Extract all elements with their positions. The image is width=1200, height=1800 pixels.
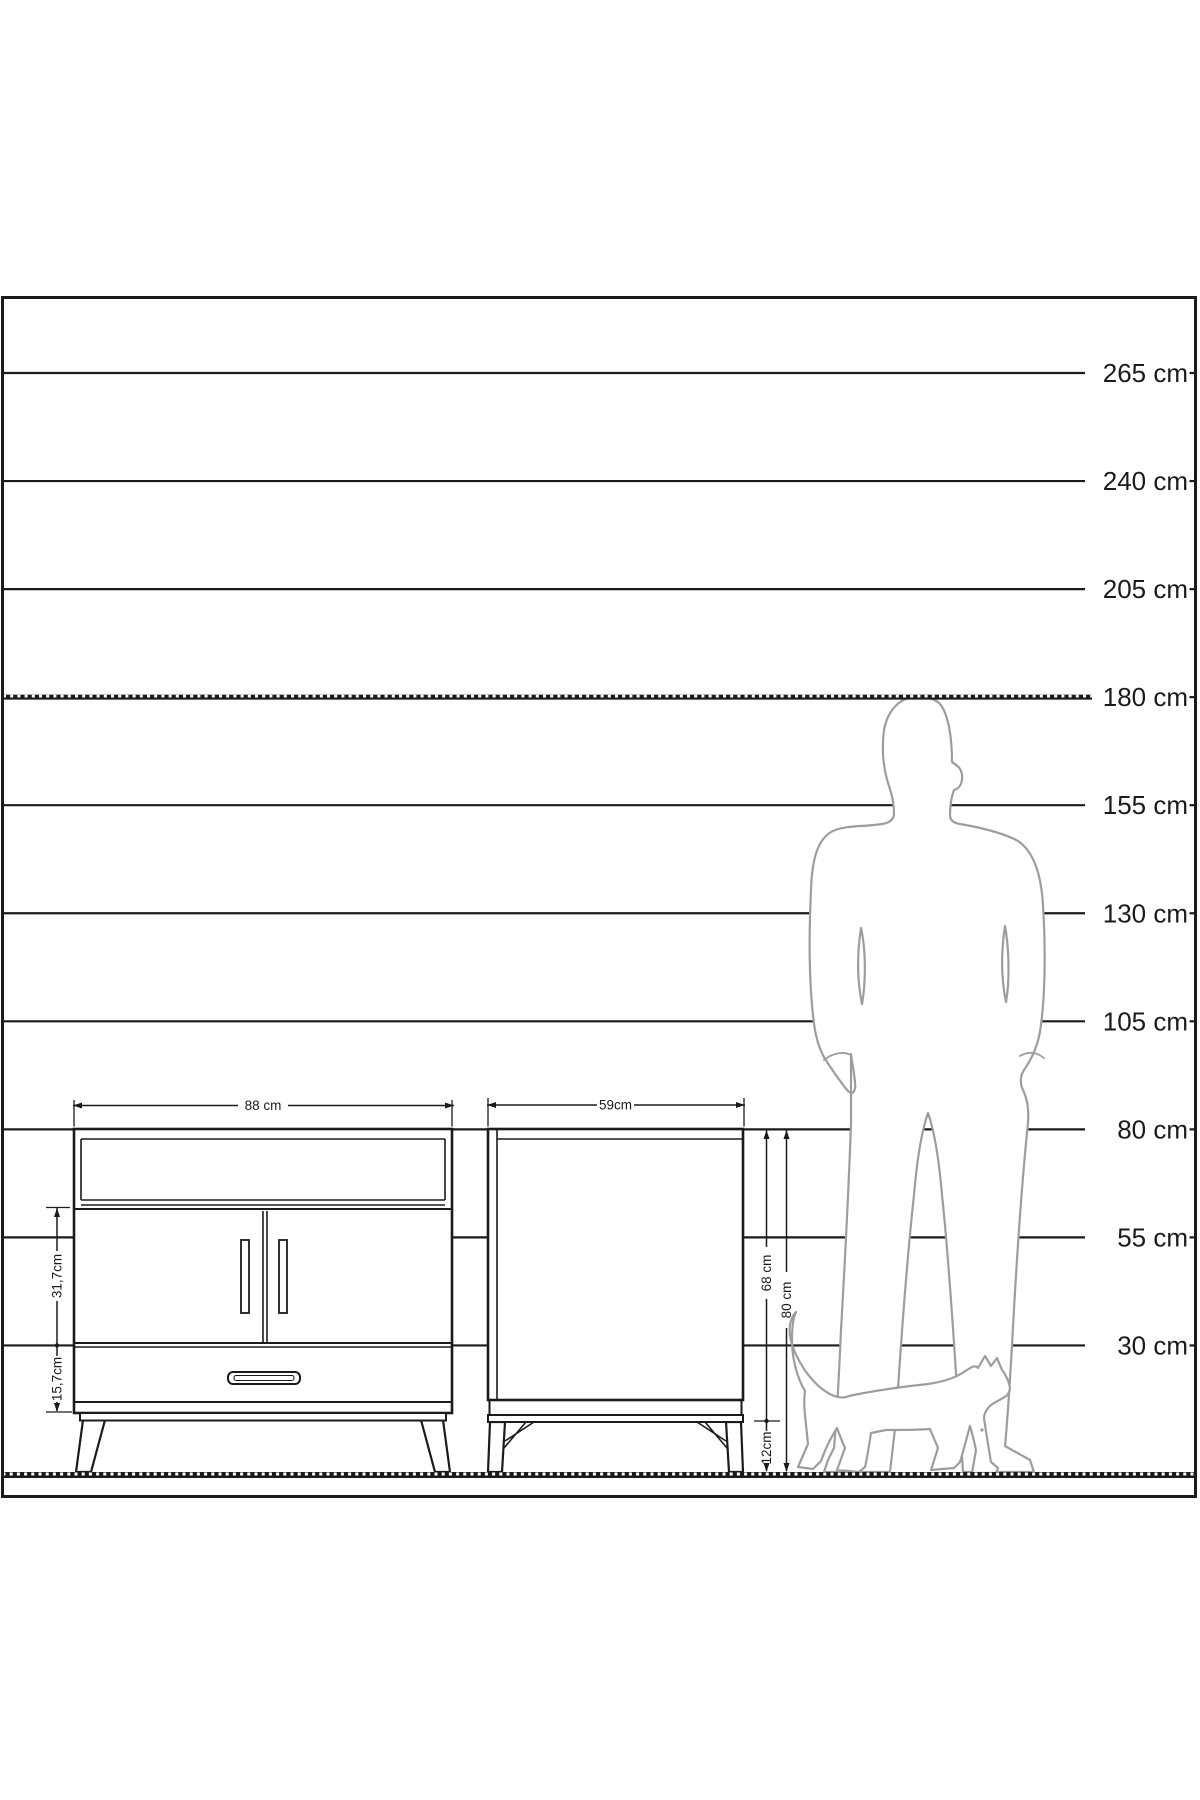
nightstand-base-rail — [488, 1415, 743, 1422]
ruler-label-155cm: 155 cm — [1103, 790, 1188, 820]
sideboard-drawer-height-label: 15,7cm — [50, 1357, 65, 1401]
ruler-label-205cm: 205 cm — [1103, 574, 1188, 604]
ruler-label-80cm: 80 cm — [1117, 1114, 1188, 1144]
sideboard-door-handle-left — [241, 1240, 249, 1313]
nightstand-body — [488, 1129, 743, 1400]
size-chart-svg: 265 cm240 cm205 cm180 cm155 cm130 cm105 … — [0, 0, 1200, 1800]
sideboard-leg-left — [76, 1420, 105, 1472]
nightstand-leg-brace-r1 — [697, 1422, 726, 1441]
dim-arrow-80-up — [784, 1130, 790, 1139]
ruler-label-240cm: 240 cm — [1103, 466, 1188, 496]
man-jacket-slit-right — [1002, 926, 1008, 1002]
nightstand-leg-brace-l2 — [504, 1422, 526, 1448]
nightstand-leg-brace-l1 — [505, 1422, 534, 1441]
sideboard-drawing — [74, 1129, 452, 1472]
ground-line — [3, 1474, 1196, 1475]
furniture-size-chart: 265 cm240 cm205 cm180 cm155 cm130 cm105 … — [0, 0, 1200, 1800]
sideboard-door-handle-right — [279, 1240, 287, 1313]
nightstand-leg-left — [488, 1422, 505, 1472]
nightstand-leg-height-label: 12cm — [759, 1431, 774, 1464]
ruler-label-55cm: 55 cm — [1117, 1222, 1188, 1252]
sideboard-width-label: 88 cm — [245, 1098, 282, 1113]
ruler-label-180cm: 180 cm — [1103, 682, 1188, 712]
sideboard-drawer-handle-inner — [234, 1376, 294, 1381]
dim-arrow-68-up — [764, 1130, 770, 1139]
nightstand-drawing — [488, 1129, 743, 1472]
nightstand-body-height-label: 68 cm — [759, 1255, 774, 1292]
man-body-outline — [810, 697, 1045, 1472]
dim-arrow-317-up — [54, 1208, 60, 1217]
sideboard-leg-right — [421, 1420, 450, 1472]
man-jacket-slit-left — [858, 928, 865, 1004]
nightstand-width-label: 59cm — [599, 1098, 632, 1113]
man-silhouette — [810, 697, 1045, 1472]
sideboard-base-rail — [80, 1413, 446, 1421]
nightstand-leg-right — [726, 1422, 743, 1472]
sideboard-door-height-label: 31,7cm — [50, 1254, 65, 1298]
nightstand-total-height-label: 80 cm — [779, 1282, 794, 1319]
ruler-label-105cm: 105 cm — [1103, 1006, 1188, 1036]
ruler-label-265cm: 265 cm — [1103, 358, 1188, 388]
dim-arrow-157-down — [54, 1403, 60, 1412]
cat-leg-dot — [980, 1428, 983, 1431]
dim-arrow-80-down — [784, 1463, 790, 1472]
ruler-label-30cm: 30 cm — [1117, 1330, 1188, 1360]
nightstand-leg-brace-r2 — [705, 1422, 727, 1448]
ruler-label-130cm: 130 cm — [1103, 898, 1188, 928]
